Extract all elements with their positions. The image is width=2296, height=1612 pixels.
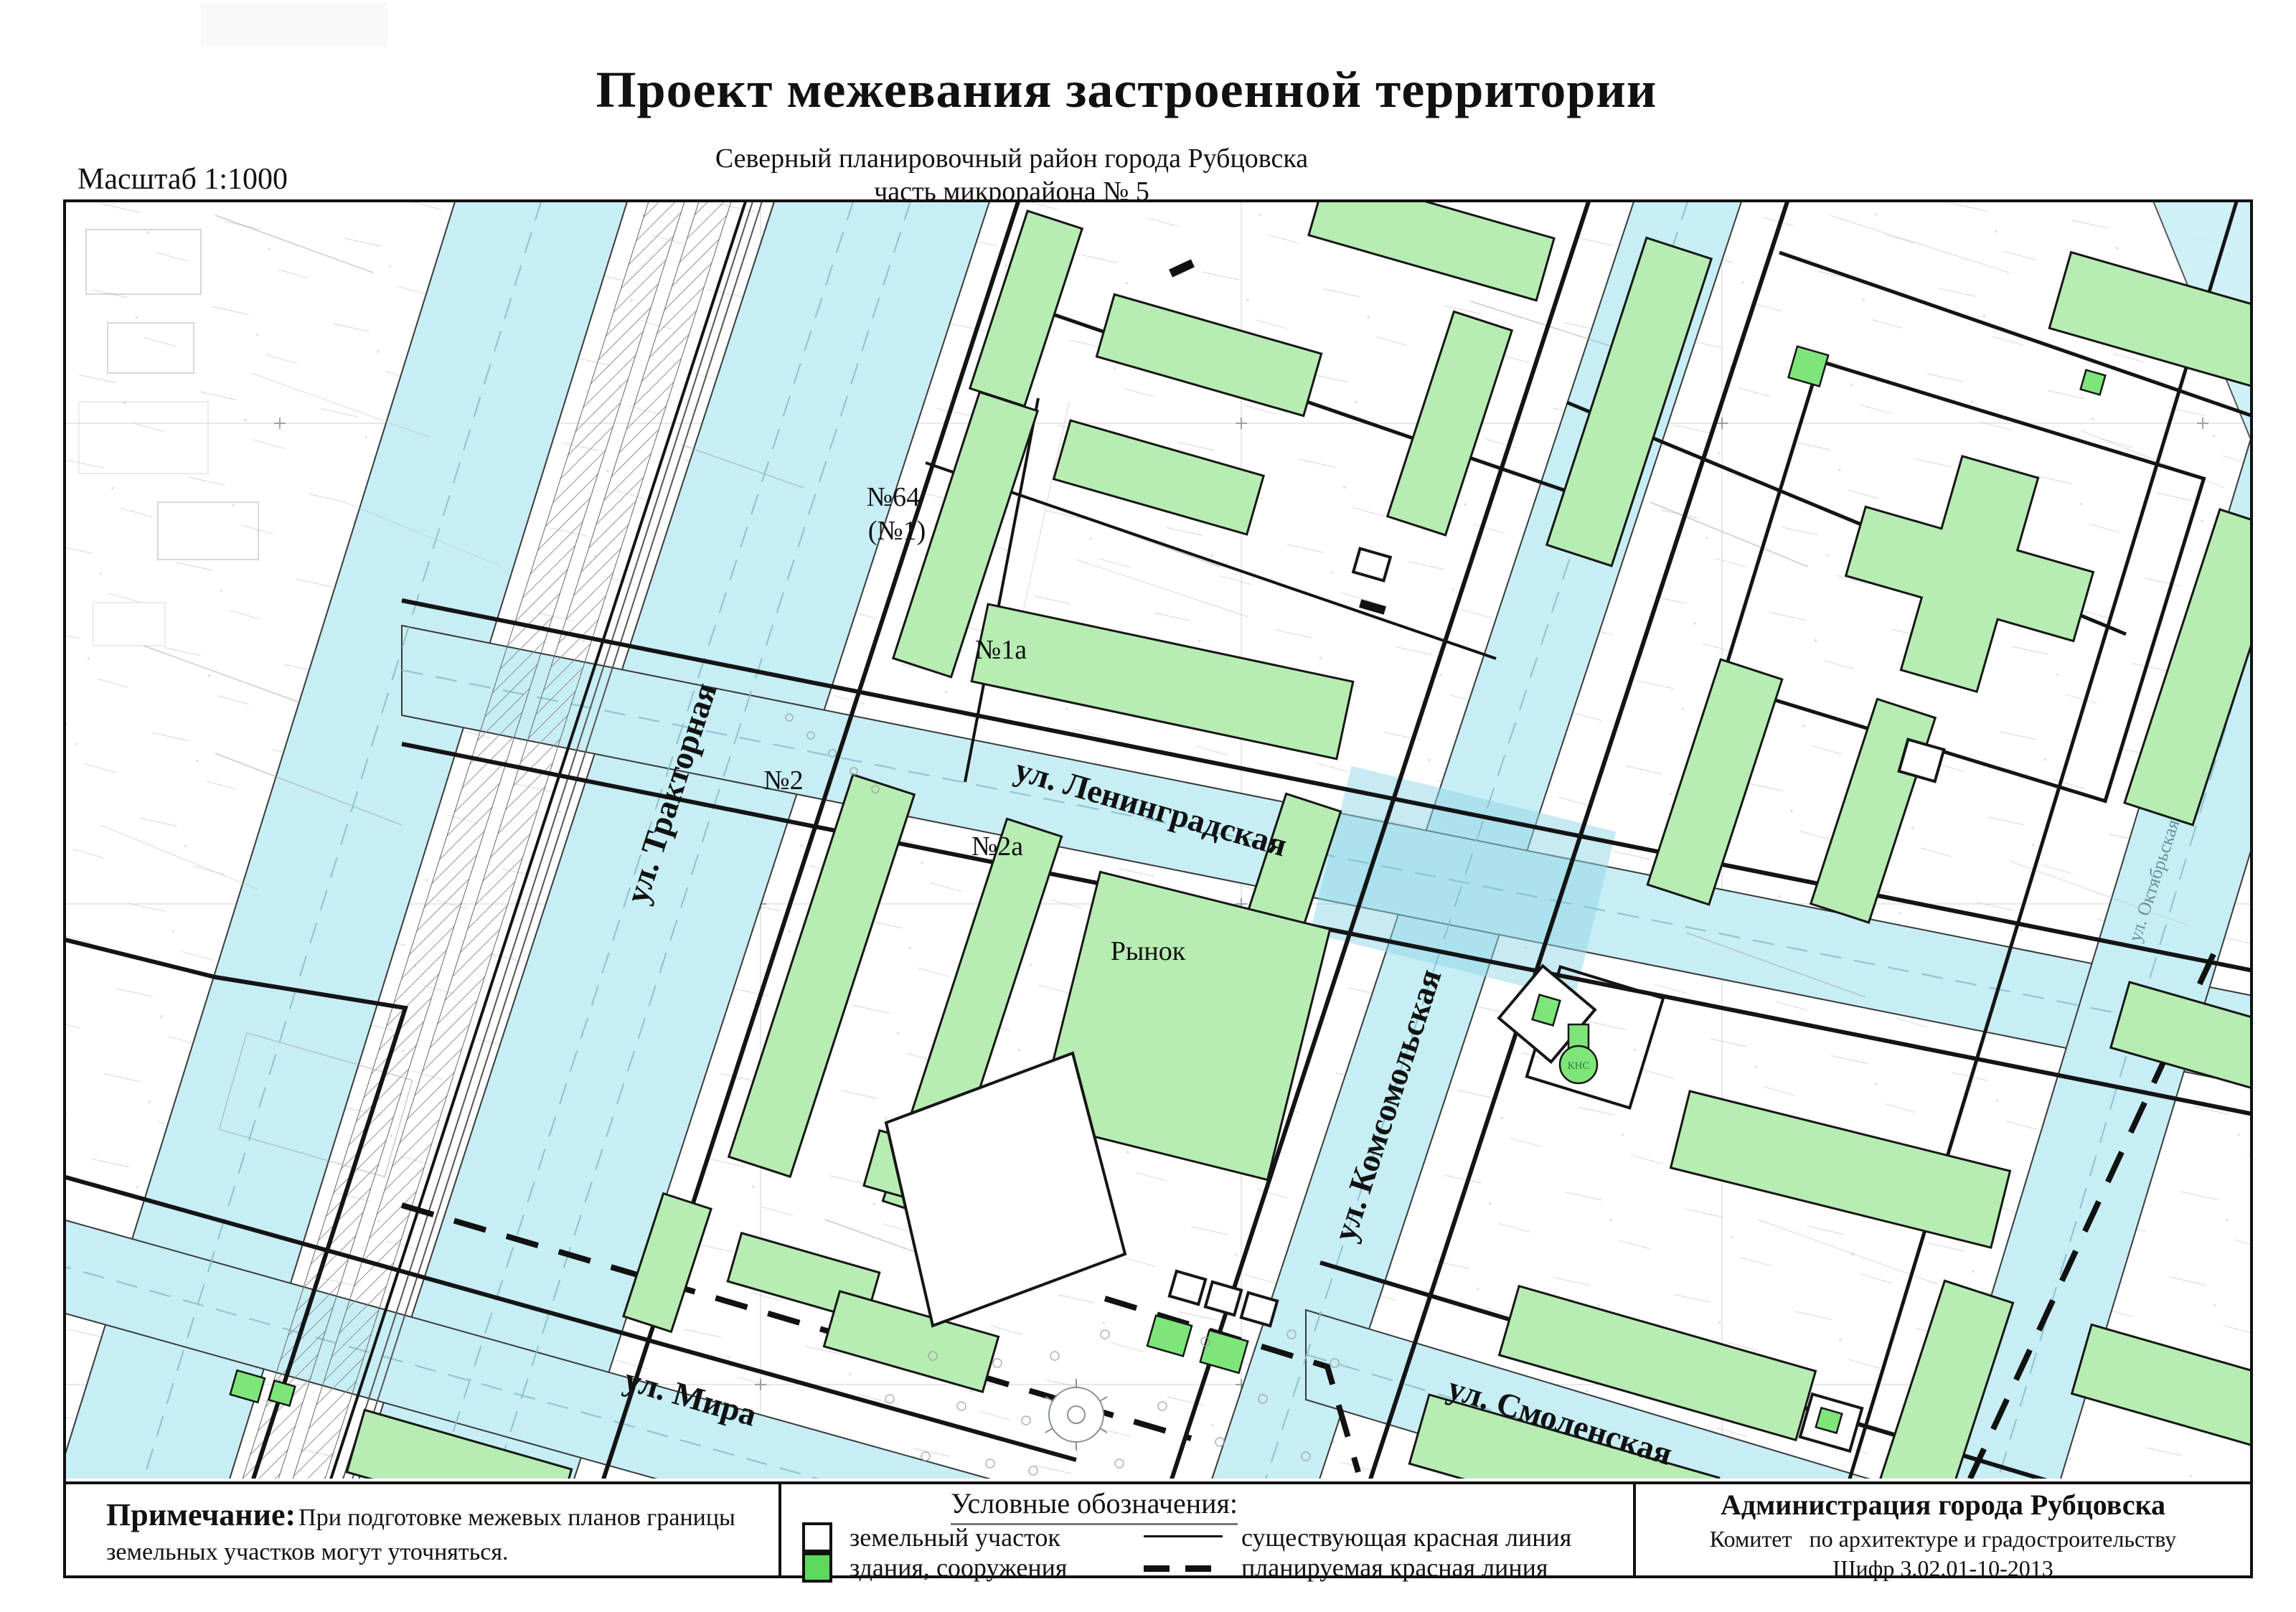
legend-label-planned-line: планируемая красная линия bbox=[1241, 1552, 1548, 1583]
legend-label-land-parcel: земельный участок bbox=[850, 1522, 1060, 1552]
org-block: Администрация города Рубцовска Комитет п… bbox=[1636, 1488, 2250, 1582]
strip-divider-1 bbox=[778, 1481, 781, 1578]
legend-symbol-existing-line bbox=[1144, 1535, 1223, 1537]
legend-swatch-buildings bbox=[802, 1552, 832, 1583]
sheet: Проект межевания застроенной территории … bbox=[0, 0, 2296, 1612]
note-label: Примечание: bbox=[106, 1497, 296, 1532]
legend-label-existing-line: существующая красная линия bbox=[1241, 1522, 1571, 1552]
note-block: Примечание: При подготовке межевых плано… bbox=[106, 1496, 766, 1566]
legend-title: Условные обозначения: bbox=[847, 1486, 1342, 1525]
note-text-line2: земельных участков могут уточняться. bbox=[106, 1539, 766, 1566]
org-name: Администрация города Рубцовска bbox=[1636, 1488, 2250, 1522]
map-frame bbox=[63, 199, 2253, 1578]
legend-label-buildings: здания, сооружения bbox=[850, 1552, 1067, 1583]
org-cipher: Шифр 3.02.01-10-2013 bbox=[1636, 1555, 2250, 1582]
note-text-line1: При подготовке межевых планов границы bbox=[298, 1504, 735, 1531]
org-committee: Комитет по архитектуре и градостроительс… bbox=[1636, 1526, 2250, 1552]
legend-symbol-planned-line bbox=[1144, 1565, 1227, 1572]
legend-swatch-land-parcel bbox=[802, 1522, 832, 1552]
legend-strip-divider bbox=[63, 1481, 2253, 1484]
